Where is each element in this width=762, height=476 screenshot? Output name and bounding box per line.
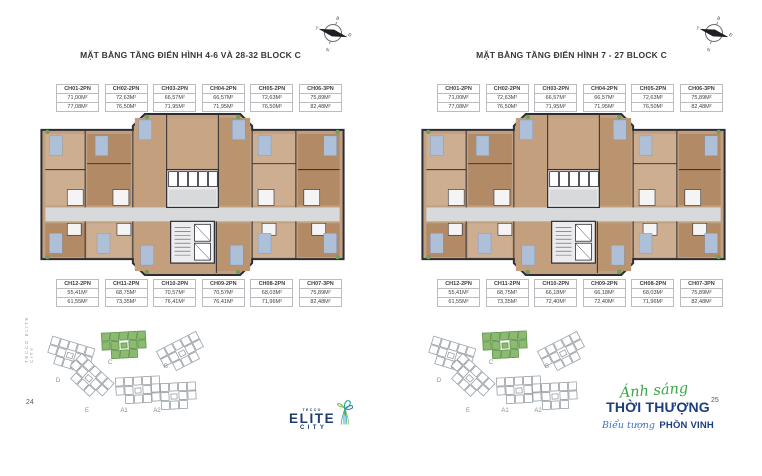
unit-label-box: CH04-2PN66,57M²71,95M² [583,84,626,112]
block-c-shape-highlighted [101,331,146,359]
unit-label-box: CH08-2PN68,03M²71,96M² [631,279,674,307]
unit-area-gross: 71,95M² [202,102,245,112]
unit-label-box: CH03-2PN66,57M²71,95M² [534,84,577,112]
block-d-label: D [56,378,61,384]
unit-area-gross: 61,55M² [437,297,480,307]
unit-area-gross: 61,55M² [56,297,99,307]
block-d-label: D [437,378,442,384]
unit-label-box: CH05-2PN72,63M²76,50M² [250,84,293,112]
logo-tree-icon [336,391,353,433]
unit-area-gross: 76,50M² [631,102,674,112]
block-a1-label: A1 [501,408,509,414]
block-a2-label: A2 [153,408,161,414]
unit-label-box: CH10-2PN66,18M²72,40M² [534,279,577,307]
unit-label-box: CH02-2PN72,63M²76,50M² [105,84,148,112]
unit-area-gross: 76,50M² [250,102,293,112]
unit-label-box: CH07-3PN75,89M²82,48M² [299,279,342,307]
block-c-shape-highlighted [482,331,527,359]
unit-area-gross: 76,50M² [486,102,529,112]
slogan-main: THỜI THƯỢNG [593,400,723,414]
unit-label-box: CH09-2PN66,18M²72,40M² [583,279,626,307]
compass-north-label: B [336,15,340,21]
unit-label-box: CH09-2PN70,57M²76,41M² [202,279,245,307]
block-c-label: C [108,360,113,366]
unit-area-gross: 76,41M² [202,297,245,307]
unit-label-box: CH01-2PN71,00M²77,08M² [56,84,99,112]
unit-label-box: CH08-2PN68,03M²71,96M² [250,279,293,307]
unit-area-gross: 71,95M² [583,102,626,112]
unit-area-gross: 82,48M² [299,102,342,112]
unit-label-box: CH03-2PN66,57M²71,95M² [153,84,196,112]
floorplan-panel-right: B Đ N T MẶT BẰNG TẦNG ĐIỂN HÌNH 7 - 27 B… [381,0,762,476]
unit-row-top: CH01-2PN71,00M²77,08M² CH02-2PN72,63M²76… [56,84,342,112]
block-e-label: E [466,408,470,414]
unit-label-box: CH12-2PN55,41M²61,55M² [56,279,99,307]
unit-label-box: CH06-3PN75,89M²82,48M² [680,84,723,112]
panel-title: MẶT BẰNG TẦNG ĐIỂN HÌNH 7 - 27 BLOCK C [381,50,762,60]
slogan: Ánh sáng THỜI THƯỢNG Biểu tượng PHỒN VIN… [593,384,723,432]
unit-label-box: CH06-3PN75,89M²82,48M² [299,84,342,112]
tecco-elite-city-logo: TECCO ELITE CITY [289,391,353,437]
floorplan-panel-left: B Đ N T MẶT BẰNG TẦNG ĐIỂN HÌNH 4-6 VÀ 2… [0,0,381,476]
unit-area-gross: 76,50M² [105,102,148,112]
slogan-bold-bottom: PHỒN VINH [659,420,714,431]
unit-area-gross: 73,35M² [105,297,148,307]
unit-label-box: CH07-3PN75,89M²82,48M² [680,279,723,307]
unit-label-box: CH05-2PN72,63M²76,50M² [631,84,674,112]
site-location-map: C B D E A1 A2 [40,327,215,415]
unit-area-gross: 82,48M² [680,102,723,112]
compass-west-label: T [696,25,700,31]
unit-label-box: CH11-2PN68,75M²73,35M² [486,279,529,307]
block-a2-shape [532,382,577,410]
unit-row-top: CH01-2PN71,00M²77,08M² CH02-2PN72,63M²76… [437,84,723,112]
block-b-label: B [545,364,549,370]
unit-area-gross: 71,96M² [250,297,293,307]
unit-label-box: CH10-2PN70,57M²76,41M² [153,279,196,307]
unit-area-gross: 77,08M² [437,102,480,112]
unit-label-box: CH04-2PN66,57M²71,95M² [202,84,245,112]
unit-row-bottom: CH12-2PN55,41M²61,55M² CH11-2PN68,75M²73… [437,279,723,307]
unit-area-gross: 77,08M² [56,102,99,112]
unit-label-box: CH01-2PN71,00M²77,08M² [437,84,480,112]
brochure-spread: TECCO ELITE CITY 24 25 B Đ N T MẶT BẰNG … [0,0,762,476]
compass-east-label: Đ [348,32,353,38]
block-a2-label: A2 [534,408,542,414]
unit-label-box: CH02-2PN72,63M²76,50M² [486,84,529,112]
logo-elite-text: ELITE [289,412,335,425]
compass-east-label: Đ [729,32,734,38]
unit-area-gross: 73,35M² [486,297,529,307]
logo-city-text: CITY [300,425,327,431]
unit-row-bottom: CH12-2PN55,41M²61,55M² CH11-2PN68,75M²73… [56,279,342,307]
unit-label-box: CH12-2PN55,41M²61,55M² [437,279,480,307]
block-b-label: B [164,364,168,370]
block-a1-label: A1 [120,408,128,414]
unit-area-gross: 82,48M² [680,297,723,307]
site-location-map: C B D E A1 A2 [421,327,596,415]
unit-area-gross: 71,96M² [631,297,674,307]
unit-area-gross: 72,40M² [583,297,626,307]
unit-area-gross: 71,95M² [534,102,577,112]
slogan-script-bottom: Biểu tượng [602,420,655,431]
block-c-label: C [489,360,494,366]
block-e-label: E [85,408,89,414]
floor-plan-drawing [414,112,733,277]
unit-area-gross: 76,41M² [153,297,196,307]
panel-title: MẶT BẰNG TẦNG ĐIỂN HÌNH 4-6 VÀ 28-32 BLO… [0,50,381,60]
unit-area-gross: 82,48M² [299,297,342,307]
compass-north-label: B [717,15,721,21]
unit-area-gross: 71,95M² [153,102,196,112]
floor-plan-drawing [33,112,352,277]
compass-west-label: T [315,25,319,31]
unit-label-box: CH11-2PN68,75M²73,35M² [105,279,148,307]
unit-area-gross: 72,40M² [534,297,577,307]
block-a2-shape [151,382,196,410]
